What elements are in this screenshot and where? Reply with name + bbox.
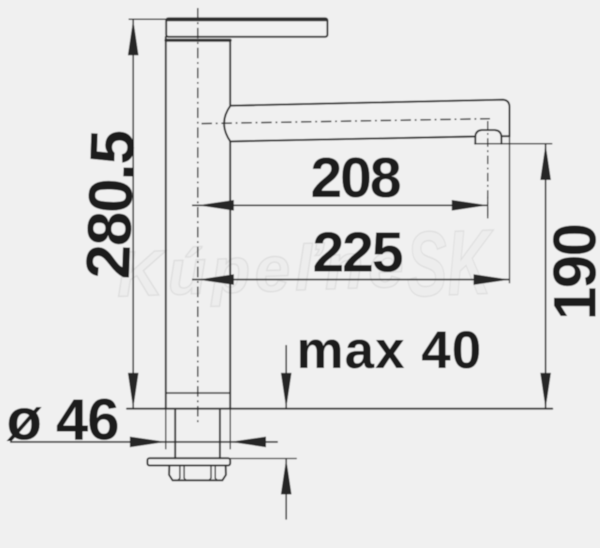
svg-text:ø 46: ø 46 xyxy=(7,388,119,453)
svg-text:280.5: 280.5 xyxy=(74,130,148,280)
svg-text:208: 208 xyxy=(310,146,399,210)
svg-text:max 40: max 40 xyxy=(297,321,483,380)
svg-text:225: 225 xyxy=(312,220,402,284)
svg-text:190: 190 xyxy=(542,224,600,320)
svg-text:SK: SK xyxy=(405,209,497,316)
